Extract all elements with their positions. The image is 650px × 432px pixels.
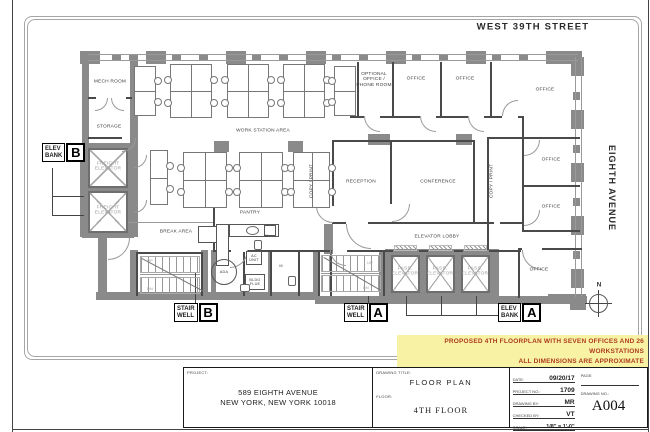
wall-poche [570,295,586,310]
room-label: ELEVATOR LOBBY [415,234,460,239]
desk-divider [248,65,249,117]
room-label: STORAGE [97,124,122,129]
project-address: NEW YORK, NEW YORK 10018 [184,398,372,408]
stair-well-b-text: STAIR WELL [174,303,198,322]
elev-bank-a-text: ELEV BANK [498,303,521,322]
wall-poche [98,237,107,294]
wall [490,62,492,116]
wall [318,252,320,296]
wall [436,116,468,118]
leader-line [406,296,407,316]
room-label: OFFICE [542,204,561,209]
window-line [581,57,582,297]
field-row-date: DATE: 09/20/17 [513,371,575,383]
room-label: DN [147,287,153,291]
window-line [575,57,576,297]
toilet-icon [254,240,262,250]
stair-well-a-badge: STAIR WELL A [344,303,388,322]
project-label: PROJECT: [187,370,208,375]
drawing-title-label: DRAWING TITLE: [376,370,411,375]
field-row-drawing-by: DRAWING BY: MR [513,395,575,407]
wall [332,140,334,206]
room-label: MECH ROOM [94,79,126,84]
wall [136,252,138,296]
drawing-no-label: DRAWING NO.: [581,391,645,396]
leader-line [441,296,442,316]
wall [138,252,201,254]
elevator-door-sill [394,245,417,251]
desk-divider [151,178,167,179]
wall [334,140,473,142]
wall [357,62,359,116]
window-column [571,110,584,129]
window-column [571,216,584,235]
leader-line [52,168,53,216]
room-label: FREIGHT ELEVATOR [95,162,121,173]
wall [383,252,385,296]
door-arc [420,116,436,132]
leader-line [476,296,477,316]
door-arc [468,116,484,132]
pantry-sink [246,226,259,235]
revision-note: PROPOSED 4TH FLOORPLAN WITH SEVEN OFFICE… [397,335,648,367]
scale-label: SCALE: [513,425,527,430]
break-table [198,226,217,243]
room-label: W [264,234,268,238]
chair-icon [210,99,218,107]
field-row-project-no: PROJECT NO.: 1709 [513,383,575,395]
wall [350,116,364,118]
wall [518,248,520,298]
door-arc [108,238,130,260]
scale-value: 1/8" = 1'-0" [546,424,574,430]
room-label: COPY / PRINT [309,164,314,198]
leader-line [406,315,499,316]
date-label: DATE: [513,377,524,382]
desk-divider [205,153,206,207]
titleblock-info-section: DATE: 09/20/17 PROJECT NO.: 1709 DRAWING… [509,368,647,427]
drawing-sheet: WEST 39TH STREET EIGHTH AVENUE N MECH RO… [0,0,650,432]
stair-well-b-badge: STAIR WELL B [174,303,218,322]
room-label: ADA [220,270,228,274]
room-label: UP [367,261,373,265]
floor-label: FLOOR: [376,394,392,399]
room-label: OFFICE [530,267,549,272]
elev-bank-b-letter: B [66,143,85,162]
wall [88,137,122,139]
chair-icon [287,188,295,196]
room-label: UP [147,259,153,263]
window-column [466,51,486,64]
desk-divider [335,91,355,92]
project-name: 589 EIGHTH AVENUE [184,388,372,398]
elev-bank-a-badge: ELEV BANK A [498,303,541,322]
stair-well-b-letter: B [199,303,218,322]
wall [440,62,442,116]
chair-icon [328,77,336,85]
room-label: OFFICE [407,76,426,81]
drawing-by-label: DRAWING BY: [513,401,540,406]
room-label: OFFICE [456,76,475,81]
elevator-door-sill [464,245,487,251]
wall [126,97,132,99]
chair-icon [210,76,218,84]
chair-icon [164,99,172,107]
room-label: FREIGHT ELEVATOR [95,206,121,217]
wall [347,250,385,252]
desk-divider [191,65,192,117]
room-label: PASS. ELEVATOR [462,267,488,278]
wall [522,137,580,139]
elev-bank-a-letter: A [522,303,541,322]
room-label: WORK STATION AREA [236,128,290,133]
wall [298,252,300,296]
room-label: CONFERENCE [420,179,456,184]
chair-icon [328,98,336,106]
door-arc [346,224,371,249]
wall-poche [82,57,89,147]
room-label: COPY / PRINT [489,164,494,198]
field-row-checked-by: CHECKED BY: VT [513,407,575,419]
chair-icon [164,76,172,84]
chair-icon [166,162,174,170]
room-label: AC UNIT [249,254,259,262]
door-arc [524,140,540,156]
chair-icon [233,188,241,196]
window-column [146,51,166,64]
wall [473,140,475,224]
desk-divider [261,153,262,207]
door-arc [316,206,333,223]
chair-icon [328,164,336,172]
stair-well-a-letter: A [369,303,388,322]
project-no-value: 1709 [560,387,574,394]
door-arc [111,98,124,111]
desk-divider [304,65,305,117]
note-line: ALL DIMENSIONS ARE APPROXIMATE [397,357,644,367]
drawing-by-value: MR [564,399,574,406]
printer-station [214,141,229,152]
window-line [88,54,578,55]
chair-icon [177,188,185,196]
checked-by-value: VT [566,411,574,418]
wall [487,137,523,139]
chair-icon [225,164,233,172]
wall [368,222,494,224]
wall [270,252,272,296]
window-line [88,60,578,61]
chair-icon [277,76,285,84]
toilet-icon [288,276,296,286]
floor-value: 4TH FLOOR [373,405,508,415]
room-label: OFFICE [536,87,555,92]
room-label: PASS. ELEVATOR [427,267,453,278]
wall [542,248,582,250]
titleblock: PROJECT: 589 EIGHTH AVENUE NEW YORK, NEW… [183,367,648,428]
titleblock-title-section: DRAWING TITLE: FLOOR PLAN FLOOR: 4TH FLO… [372,368,508,427]
wall [500,222,522,224]
wall [419,250,428,252]
room-label: OPTIONAL OFFICE / PHONE ROOM [356,72,391,88]
door-arc [95,98,108,111]
chair-icon [328,188,336,196]
wall [380,116,420,118]
window-column [306,51,326,64]
stair-treads [321,275,381,292]
elev-bank-b-badge: ELEV BANK B [42,143,85,162]
stair-well-a-text: STAIR WELL [344,303,368,322]
chair-icon [221,76,229,84]
north-arrow-label: N [597,282,602,289]
street-label-west-39th: WEST 39TH STREET [477,22,590,33]
window-column [226,51,246,64]
window-column [80,51,100,64]
door-arc [524,210,540,226]
field-row-scale: SCALE: 1/8" = 1'-0" [513,419,575,431]
wall [390,140,392,204]
window-column [571,163,584,182]
room-label: M [279,264,282,268]
leader-line [52,215,84,216]
date-value: 09/20/17 [549,375,574,382]
note-line: PROPOSED 4TH FLOORPLAN WITH SEVEN OFFICE… [397,337,644,357]
wall [524,185,580,187]
chair-icon [277,99,285,107]
wall [489,250,521,252]
chair-icon [154,98,162,106]
wall [522,230,580,232]
elevator-door-sill [429,245,452,251]
chair-icon [221,99,229,107]
wall [522,116,524,139]
door-arc [502,100,518,116]
wall [392,62,394,116]
room-label: PANTRY [240,210,260,215]
titleblock-project-section: PROJECT: 589 EIGHTH AVENUE NEW YORK, NEW… [184,368,372,427]
room-label: RECEPTION [346,179,376,184]
door-arc [364,116,380,132]
room-label: BREAK AREA [160,229,192,234]
checked-by-label: CHECKED BY: [513,413,540,418]
wall [454,250,463,252]
window-column [571,269,584,288]
chair-icon [166,185,174,193]
north-arrow-icon [589,294,608,313]
chair-icon [267,76,275,84]
drawing-title: FLOOR PLAN [373,378,508,387]
door-arc [134,200,147,213]
room-label: OFFICE [542,157,561,162]
chair-icon [225,188,233,196]
door-arc [134,155,147,168]
wall [332,222,346,224]
chair-icon [154,77,162,85]
room-label: BLDG FLUE [249,278,260,286]
chair-icon [267,99,275,107]
project-no-label: PROJECT NO.: [513,389,541,394]
room-label: PASS. ELEVATOR [392,267,418,278]
door-arc [392,204,410,222]
drawing-no-value: A004 [581,398,637,415]
street-label-eighth-avenue: EIGHTH AVENUE [607,145,617,231]
room-label: DN [363,286,369,290]
elev-bank-b-text: ELEV BANK [42,143,65,162]
desk-divider [135,91,155,92]
printer-station [288,141,303,152]
window-column [386,51,406,64]
page-value-line [581,378,639,386]
wall [484,116,502,118]
leader-line [52,196,84,197]
wall [385,250,393,252]
